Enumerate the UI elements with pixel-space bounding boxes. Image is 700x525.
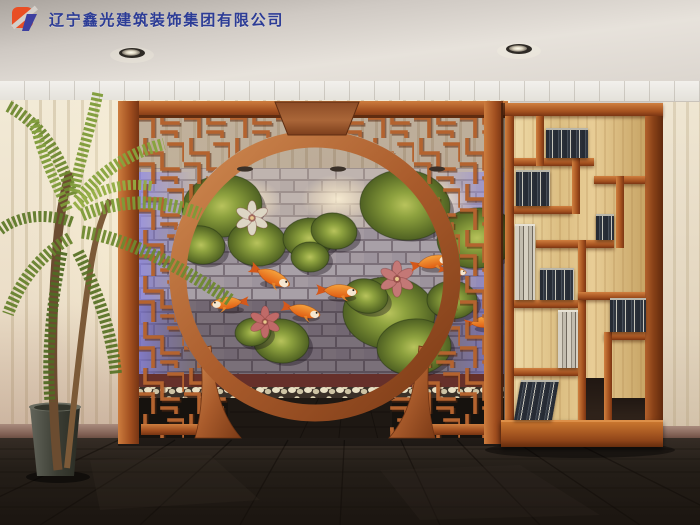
book-stack bbox=[546, 128, 588, 158]
interior-rendering: 辽宁鑫光建筑装饰集团有限公司 bbox=[0, 0, 700, 525]
shelf-base-plinth bbox=[501, 420, 663, 447]
company-logo: 辽宁鑫光建筑装饰集团有限公司 bbox=[12, 6, 284, 32]
book-stack bbox=[514, 380, 559, 420]
display-shelf bbox=[0, 0, 700, 525]
shelf-divider bbox=[616, 176, 624, 248]
shelf-divider bbox=[604, 332, 612, 420]
shelf-divider bbox=[536, 116, 544, 166]
shelf-open-void bbox=[586, 378, 604, 420]
book-stack bbox=[516, 170, 550, 206]
shelf-divider bbox=[505, 116, 514, 422]
shelf-divider bbox=[572, 158, 580, 214]
shelf-divider bbox=[514, 158, 594, 166]
logo-mark-icon bbox=[12, 6, 42, 32]
book-stack bbox=[596, 214, 614, 240]
shelf-open-void bbox=[612, 398, 645, 420]
shelf-divider bbox=[578, 240, 586, 420]
shelf-divider bbox=[536, 240, 614, 248]
shelf-divider bbox=[645, 116, 663, 422]
book-stack bbox=[540, 268, 574, 300]
shelf-divider bbox=[514, 206, 572, 214]
shelf-divider bbox=[514, 300, 578, 308]
book-stack bbox=[610, 298, 646, 332]
book-stack bbox=[558, 310, 578, 368]
company-name: 辽宁鑫光建筑装饰集团有限公司 bbox=[49, 9, 284, 30]
shelf-divider bbox=[514, 368, 578, 376]
shelf-divider bbox=[505, 103, 663, 116]
book-stack bbox=[515, 224, 535, 300]
